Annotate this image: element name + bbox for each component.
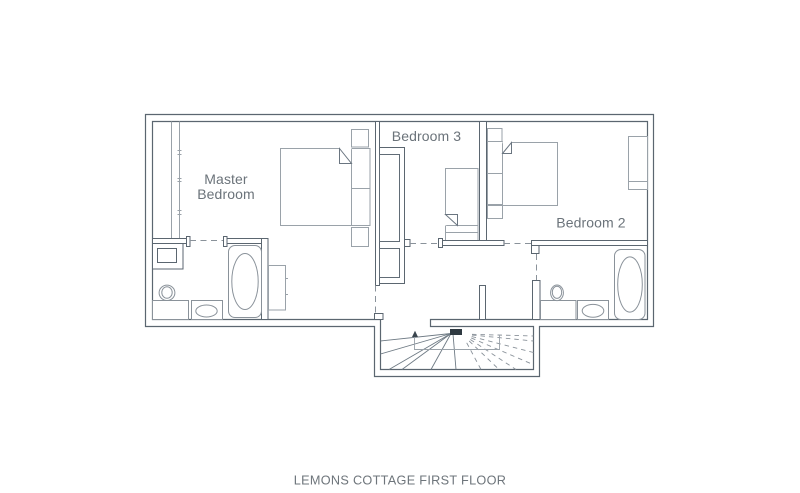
svg-text:Bedroom: Bedroom — [197, 186, 255, 202]
svg-text:LEMONS COTTAGE FIRST FLOOR: LEMONS COTTAGE FIRST FLOOR — [294, 474, 506, 488]
svg-text:Master: Master — [204, 171, 248, 187]
svg-text:Bedroom 3: Bedroom 3 — [392, 128, 461, 144]
svg-text:Bedroom 2: Bedroom 2 — [556, 215, 625, 231]
